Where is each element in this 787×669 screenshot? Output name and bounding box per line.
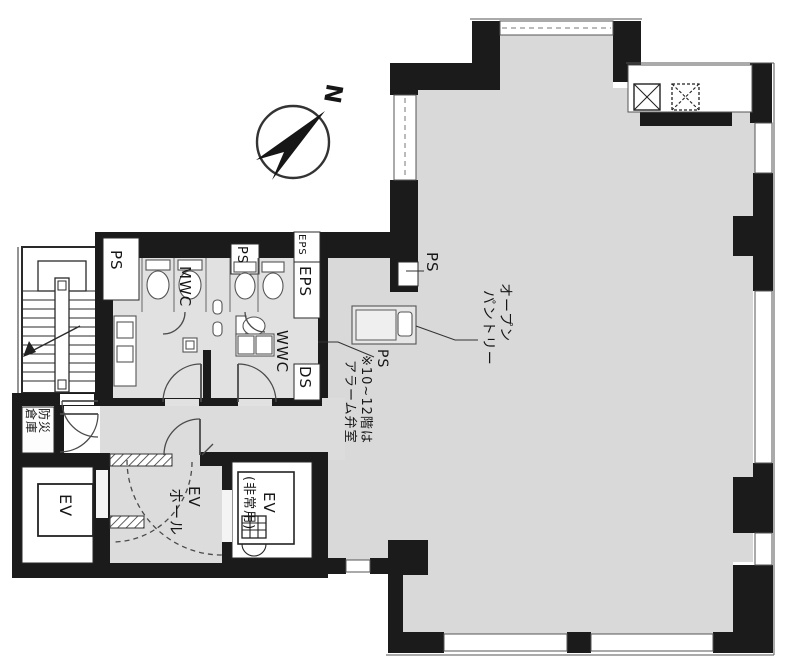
label-open-pantry-line1: オープン [497,283,512,342]
label-ev-hall-line1: EV [186,486,202,508]
window-right-1 [755,123,772,173]
label-ps-note-line1: ※10~12階は [358,355,372,444]
wall-right-bump-1 [733,216,755,256]
wall-right-pillar-2 [753,173,773,291]
window-right-2 [755,291,772,463]
slop-sink-basin [186,341,194,349]
stairwell [18,247,100,393]
door-stair [62,401,98,437]
wall-bottom-1 [388,632,444,653]
label-ev-emergency-line2: (非常用) [241,476,255,530]
toilet-wwc-2 [262,262,284,299]
label-disaster-storage-line2: 倉庫 [24,408,37,434]
window-right-3 [755,533,772,565]
urinal-2 [213,322,222,336]
floor-main-bottom [402,540,733,634]
window-bottom-1 [444,634,567,651]
floor-bay-bump [500,33,613,90]
opening-mwc-door [165,399,199,406]
floor-plan-drawing [0,0,787,669]
label-disaster-storage-line1: 防災 [37,408,50,434]
wall-step-vertical [388,575,403,632]
wall-right-pillar-1 [750,63,772,123]
label-ps-note-ps: PS [374,349,389,368]
floor-ev-hall [108,452,222,565]
label-mwc: MWC [177,266,193,307]
label-ps-center: PS [234,246,248,264]
wall-bottom-2 [567,632,591,653]
label-wwc: WWC [274,330,290,373]
wall-vestibule [203,350,211,398]
window-step [346,560,370,572]
opening-evhall-door [172,452,200,466]
wall-storage-right [54,405,64,457]
compass [256,106,329,180]
fire-shutter-1 [110,454,172,466]
label-open-pantry-line2: パントリー [480,290,495,366]
door-disaster-storage [60,414,98,452]
toilet-mwc-1 [146,260,170,299]
vanity-wwc [236,334,274,356]
urinal-1 [213,300,222,314]
opening-stair-door [60,394,94,405]
floor-main-topleft [415,88,630,238]
wall-bottom-3 [713,632,773,653]
label-ps-note-line2: アラーム弁室 [342,360,356,444]
vent-box-solid-icon [634,84,660,110]
label-ev-emergency-line1: EV [261,492,277,514]
label-ps-right: PS [424,252,440,273]
wall-main-left-lower [390,180,418,234]
wall-service-bottom [95,398,322,406]
wall-step-block [388,540,428,575]
vanity-mwc [114,316,136,386]
floor-corridor [100,398,345,460]
opening-wwc-door [238,399,272,406]
floor-wwc-east [294,316,320,366]
label-eps: EPS [297,266,313,297]
wall-right-bump-2 [733,477,757,533]
fire-shutter-2 [110,516,144,528]
vent-box-dashed-icon [672,84,699,110]
label-elevator: EV [57,494,74,517]
opening-elevator-door [96,470,108,518]
opening-elevator-emergency-door [222,490,232,542]
label-ds: DS [297,366,313,389]
label-eps-top: EPS [295,234,306,256]
wall-step-mid [370,558,389,574]
label-ev-hall-line2: ホール [168,488,184,536]
window-bottom-2 [591,634,713,651]
floor-plan: N PS MWC PS EPS EPS WWC DS PS オープン パントリー… [0,0,787,669]
wall-bay-pillar-left [472,21,500,90]
pantry-counter [352,306,416,344]
pantry-sink [398,312,412,336]
toilet-wwc-1 [234,262,256,299]
label-ps-stair: PS [108,250,124,271]
room-ps-niche [398,262,418,286]
compass-north-label: N [318,82,346,106]
wall-main-left-corner [390,63,418,95]
wall-left-exterior [12,397,22,578]
